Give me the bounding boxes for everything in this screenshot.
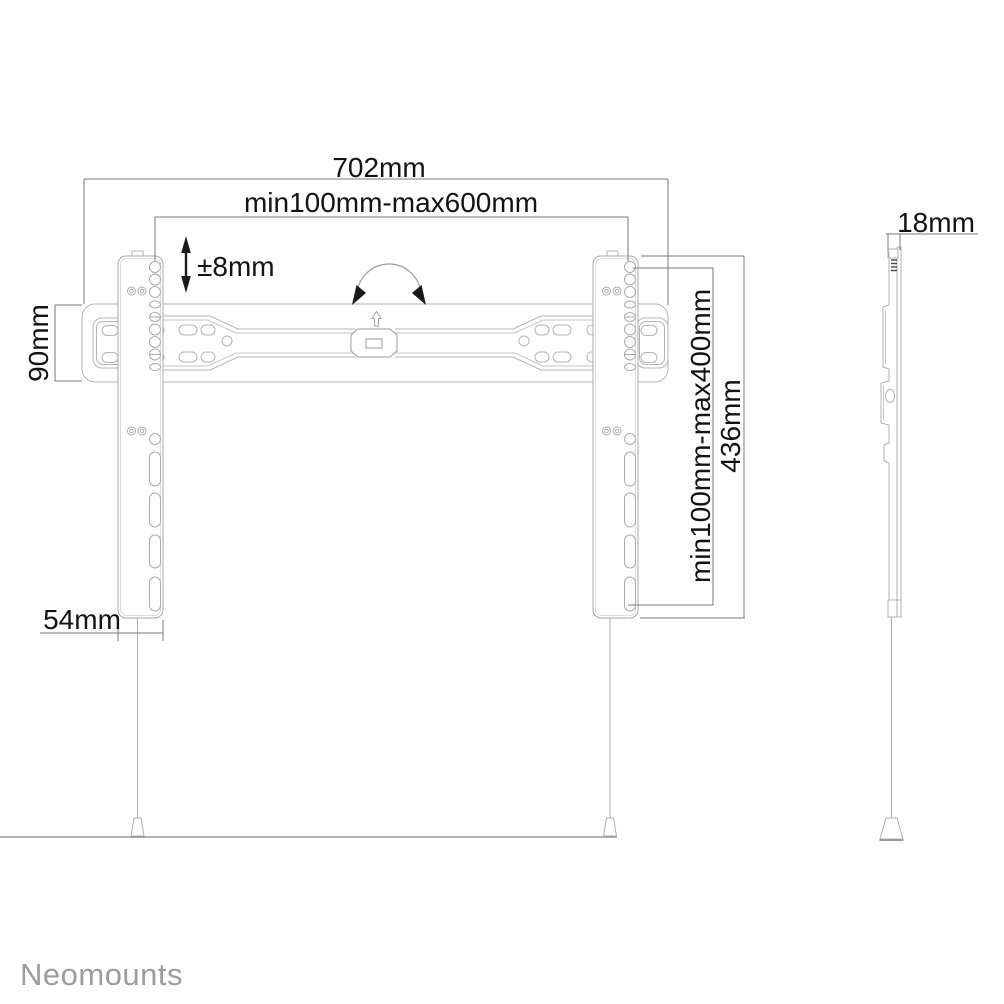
- left-vesa-bracket: [118, 251, 163, 618]
- right-vesa-bracket: [593, 251, 638, 618]
- dim-rail-height-label: 90mm: [23, 304, 54, 382]
- dim-bracket-height-label: 436mm: [715, 379, 746, 472]
- dim-horizontal-hole-range-label: min100mm-max600mm: [244, 187, 538, 218]
- dim-bracket-width-label: 54mm: [43, 604, 121, 635]
- right-pull-cord: [0, 618, 617, 837]
- dim-overall-width-label: 702mm: [332, 152, 425, 183]
- rail-right-end-cap: [636, 318, 668, 368]
- dim-height-adjustment-label: ±8mm: [197, 251, 275, 282]
- dim-rail-height: [55, 305, 82, 381]
- brand-logo: Neomounts: [20, 957, 183, 992]
- dim-profile-depth-label: 18mm: [897, 207, 975, 238]
- side-view-profile: [880, 247, 904, 840]
- wall-mount-diagram: 702mm min100mm-max600mm ±8mm 90mm 54mm m…: [0, 0, 1004, 1004]
- dimension-lines: [40, 179, 978, 641]
- technical-drawing-page: 702mm min100mm-max600mm ±8mm 90mm 54mm m…: [0, 0, 1004, 1004]
- dim-vertical-hole-range-label: min100mm-max400mm: [685, 289, 716, 583]
- height-adjust-arrow: [181, 236, 191, 293]
- front-view-rail: [82, 304, 668, 382]
- rotation-arc: [352, 264, 426, 305]
- left-pull-cord: [131, 618, 145, 837]
- center-lock-block: [351, 329, 397, 357]
